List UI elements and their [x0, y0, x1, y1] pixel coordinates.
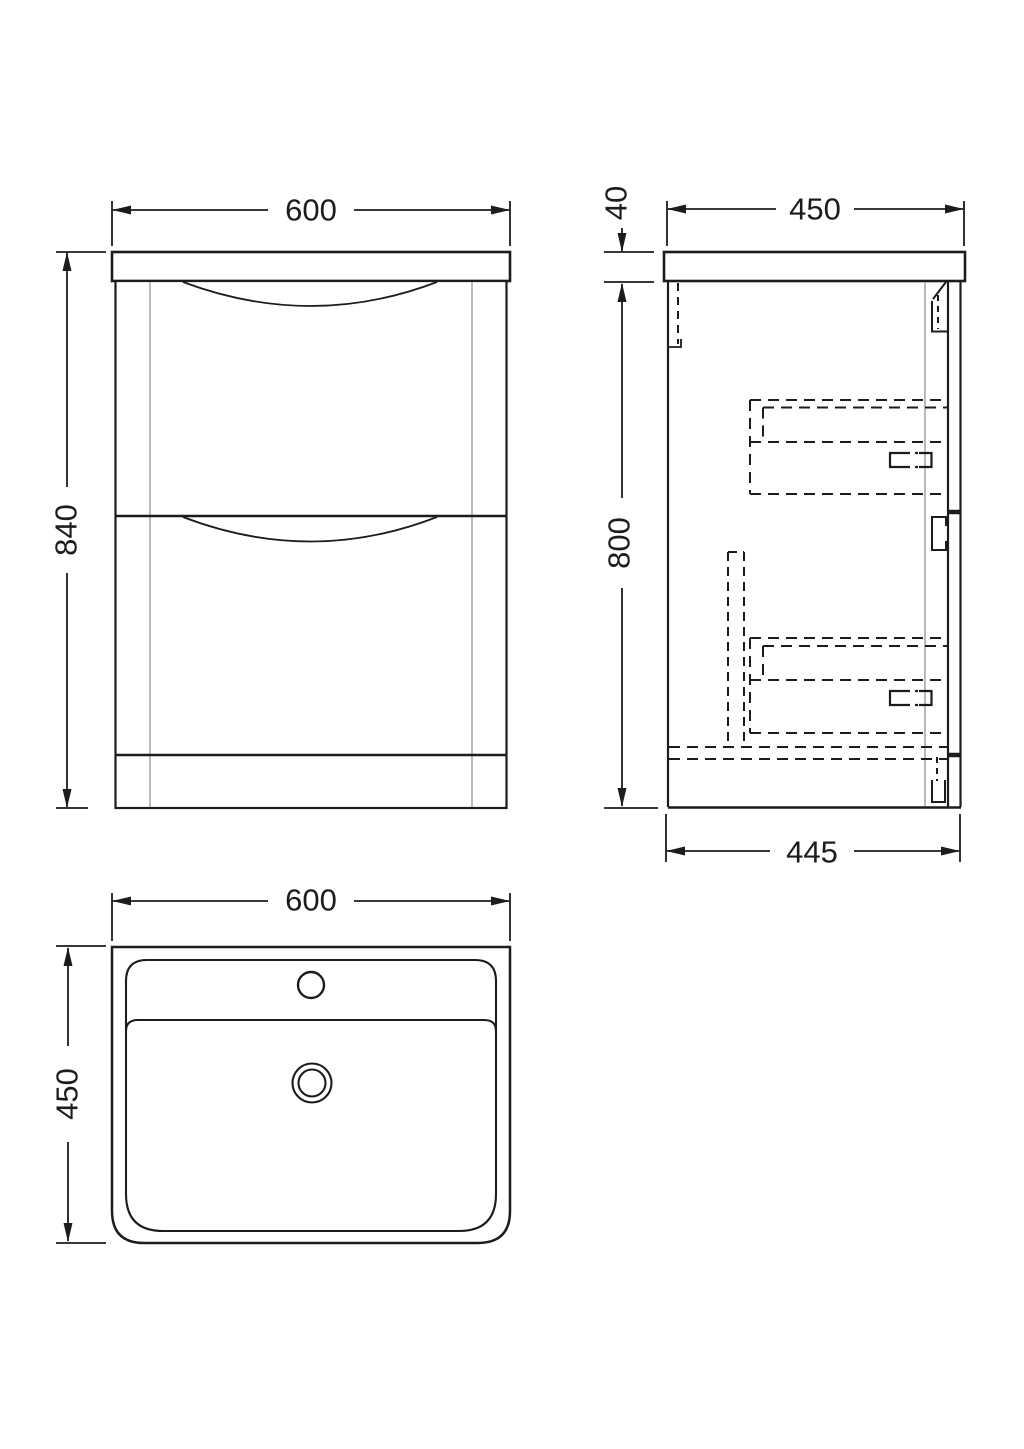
side-worktop-thickness-dim-label: 40	[601, 183, 632, 223]
plan-depth-dim-label: 450	[52, 1065, 83, 1123]
side-foot-bracket	[932, 780, 945, 802]
side-back-rail-step	[668, 339, 681, 347]
side-depth-dim-label: 450	[786, 194, 844, 225]
side-handle1-chamfer	[933, 282, 946, 299]
side-lower-drawer-hidden	[750, 638, 947, 733]
side-cabinet-height-dim-label: 800	[604, 514, 635, 572]
technical-drawing-canvas: 600 840 40 450 800 445 600 450	[0, 0, 1024, 1449]
plan-basin-outer	[112, 947, 510, 1243]
front-worktop	[112, 252, 510, 281]
front-view	[112, 252, 510, 808]
side-handle2-pocket	[932, 517, 946, 550]
front-width-dim-label: 600	[282, 195, 340, 226]
side-upper-runner-left	[890, 453, 903, 467]
side-base-depth-dim-label: 445	[783, 837, 841, 868]
dim-side-thickness	[604, 228, 654, 282]
front-height-dim-label: 840	[51, 501, 82, 559]
side-waste-pipe-hidden	[728, 552, 744, 746]
front-cabinet-body	[116, 281, 507, 808]
side-handle1-pocket	[932, 301, 949, 332]
side-worktop	[664, 252, 965, 281]
side-lower-runner-left	[890, 691, 903, 705]
plan-width-dim-label: 600	[282, 885, 340, 916]
side-upper-drawer-hidden	[750, 400, 947, 494]
plan-view	[112, 947, 510, 1243]
drawing-svg	[0, 0, 1024, 1449]
side-view	[664, 252, 965, 808]
